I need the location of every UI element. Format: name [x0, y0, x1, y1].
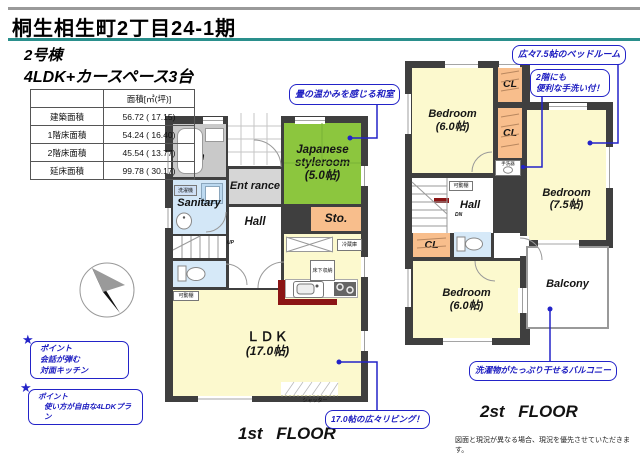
- sanitary-label: Sanitary: [167, 197, 231, 209]
- callout-handwash: 2階にも 便利な手洗い付！: [530, 69, 610, 97]
- counter-red-horizontal: [278, 299, 337, 305]
- window: [361, 257, 368, 277]
- point-title: ポイント: [38, 392, 138, 402]
- window: [405, 269, 411, 307]
- room-label: Bedroom: [428, 108, 476, 121]
- window: [443, 338, 492, 345]
- room-ldk-right: [284, 234, 361, 396]
- room-label: Japanese styleroom: [284, 144, 361, 170]
- table-row: 延床面積 99.78 ( 30.17): [31, 162, 195, 180]
- point-line: 対面キッチン: [40, 366, 124, 377]
- window: [203, 117, 223, 124]
- room-label: Bedroom: [542, 187, 590, 200]
- window: [538, 240, 579, 248]
- room-label: CL: [503, 78, 517, 90]
- movable-shelf-label-2f: 可動棚: [449, 181, 473, 191]
- point-title: ポイント: [40, 344, 124, 355]
- point-box-plan: ポイント 使い方が自由な4LDKプラン: [28, 389, 143, 425]
- window: [549, 103, 587, 110]
- up-label: UP: [227, 240, 234, 246]
- cupboard: [286, 237, 333, 252]
- room-label: ＬＤＫ: [246, 330, 288, 345]
- title-underline: [8, 38, 640, 41]
- point-box-kitchen: ポイント 会話が弾む 対面キッチン: [30, 341, 129, 379]
- point-line: 使い方が自由な4LDKプラン: [38, 402, 138, 422]
- window: [518, 288, 527, 313]
- room-size: (6.0帖): [436, 121, 470, 134]
- corridor-2f: [494, 233, 520, 258]
- room-toilet-1f: [173, 261, 226, 287]
- top-rule: [8, 7, 640, 10]
- callout-text: 2階にも: [536, 72, 604, 83]
- shutter-label: シャッター: [290, 397, 340, 404]
- area-value: 56.72 ( 17.15): [104, 108, 195, 126]
- area-value: 99.78 ( 30.17): [104, 162, 195, 180]
- table-row: 建築面積 56.72 ( 17.15): [31, 108, 195, 126]
- compass-icon: [80, 263, 134, 317]
- area-label: 建築面積: [31, 108, 104, 126]
- room-size: (5.0帖): [305, 170, 340, 183]
- room-label: CL: [503, 127, 517, 139]
- callout-text: 畳の温かみを感じる和室: [295, 89, 394, 101]
- window: [405, 94, 411, 134]
- point-line: 会話が弾む: [40, 355, 124, 366]
- room-label: Ent rance: [230, 180, 280, 193]
- ldk-label: ＬＤＫ (17.0帖): [210, 326, 325, 362]
- kitchen-sink: [293, 281, 324, 298]
- callout-tatami: 畳の温かみを感じる和室: [289, 84, 400, 105]
- area-label: 延床面積: [31, 162, 104, 180]
- room-cl-bottom: CL: [413, 233, 450, 257]
- room-label: Sto.: [325, 212, 348, 226]
- floor2-caption: 2st FLOOR: [480, 402, 578, 422]
- area-label: 2階床面積: [31, 144, 104, 162]
- flyer-page: 桐生相生町2丁目24-1期 2号棟 4LDK+カースペース3台 面積[㎡(坪)]…: [0, 0, 640, 453]
- washer-label: 洗濯機: [174, 185, 197, 196]
- room-toilet-2f: [454, 232, 491, 257]
- star-icon: ★: [20, 380, 32, 396]
- room-entrance: Ent rance: [229, 169, 281, 204]
- disclaimer: 図面と現況が異なる場合、現況を優先させていただきます。: [455, 435, 640, 453]
- page-title: 桐生相生町2丁目24-1期: [12, 12, 236, 41]
- building-layout: 4LDK+カースペース3台: [24, 63, 193, 87]
- area-value: 45.54 ( 13.77): [104, 144, 195, 162]
- table-row: 2階床面積 45.54 ( 13.77): [31, 144, 195, 162]
- room-cl-top: CL: [498, 67, 522, 102]
- window: [198, 396, 252, 402]
- callout-text: 便利な手洗い付！: [536, 83, 604, 94]
- table-row: 面積[㎡(坪)]: [31, 90, 195, 108]
- area-header-unit: 面積[㎡(坪)]: [104, 90, 195, 108]
- hall-2f-label: Hall: [460, 199, 496, 211]
- room-hall-1f: Hall: [229, 207, 281, 288]
- porch: [228, 112, 281, 166]
- floor1-caption: 1st FLOOR: [238, 424, 336, 444]
- callout-text: 17.0帖の広々リビング！: [331, 414, 424, 425]
- room-label: CL: [425, 239, 439, 251]
- handwash-label: 手洗器: [496, 161, 520, 167]
- window: [361, 166, 368, 186]
- stove: [334, 282, 356, 296]
- room-size: (7.5帖): [550, 199, 584, 212]
- room-storage: Sto.: [311, 207, 361, 231]
- callout-text: 広々7.5帖のベッドルーム: [518, 49, 620, 61]
- window: [295, 117, 325, 124]
- callout-living: 17.0帖の広々リビング！: [325, 410, 430, 429]
- room-label: Bedroom: [442, 287, 490, 300]
- room-label: Balcony: [546, 278, 589, 291]
- room-japanese: Japanese styleroom (5.0帖): [284, 123, 361, 204]
- room-bedroom3: Bedroom (6.0帖): [413, 261, 520, 338]
- room-size: (6.0帖): [450, 300, 484, 313]
- area-header-blank: [31, 90, 104, 108]
- callout-balcony: 洗濯物がたっぷり干せるバルコニー: [469, 361, 617, 381]
- window: [165, 208, 171, 228]
- room-label: Hall: [244, 216, 265, 229]
- bath-shelf: [205, 128, 224, 142]
- star-icon: ★: [22, 332, 34, 348]
- callout-text: 洗濯物がたっぷり干せるバルコニー: [475, 365, 611, 376]
- balcony: Balcony: [526, 246, 609, 329]
- room-bedroom2: Bedroom (7.5帖): [527, 110, 606, 240]
- area-table: 面積[㎡(坪)] 建築面積 56.72 ( 17.15) 1階床面積 54.24…: [30, 89, 195, 180]
- room-cl-mid: CL: [498, 108, 522, 158]
- table-row: 1階床面積 54.24 ( 16.40): [31, 126, 195, 144]
- refrigerator-label: 冷蔵庫: [337, 239, 362, 251]
- area-label: 1階床面積: [31, 126, 104, 144]
- window: [445, 61, 478, 68]
- movable-shelf-label-1f: 可動棚: [173, 291, 199, 301]
- room-bedroom1: Bedroom (6.0帖): [412, 68, 493, 173]
- shutter-window: [281, 382, 338, 395]
- underfloor-storage-label: 床下収納: [310, 260, 335, 281]
- handrail-red: [434, 198, 449, 203]
- down-label: DN: [455, 212, 462, 218]
- area-value: 54.24 ( 16.40): [104, 126, 195, 144]
- room-size: (17.0帖): [246, 345, 289, 359]
- building-name: 2号棟: [24, 44, 62, 65]
- window: [361, 331, 368, 351]
- callout-bedroom75: 広々7.5帖のベッドルーム: [512, 45, 626, 65]
- window: [606, 147, 613, 188]
- stairs-1f: [173, 236, 226, 258]
